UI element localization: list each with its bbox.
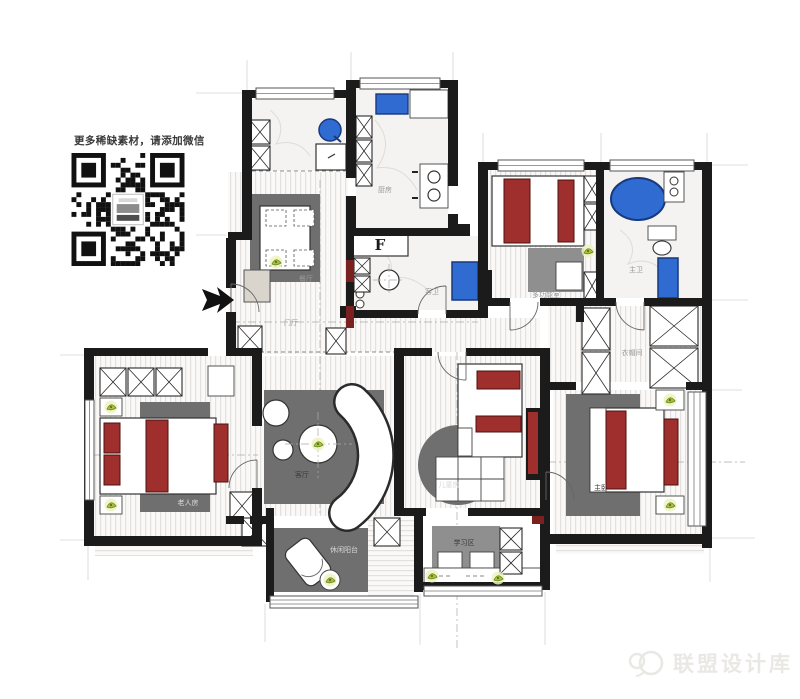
floorplan-drawing: 厨房 客卫 餐厅 门厅 客厅 多功能室 主卫 衣帽间 主卧 儿童房 学习区 休闲… xyxy=(0,0,800,699)
label-living: 客厅 xyxy=(295,470,309,479)
label-master-bedroom: 主卧 xyxy=(594,483,608,492)
watermark: 联盟设计库 xyxy=(626,646,793,680)
wechat-qr-code xyxy=(68,153,188,266)
label-guest-bath: 客卫 xyxy=(425,287,439,296)
floorplan-canvas: 厨房 客卫 餐厅 门厅 客厅 多功能室 主卫 衣帽间 主卧 儿童房 学习区 休闲… xyxy=(0,0,800,699)
label-study: 学习区 xyxy=(454,538,475,547)
label-kids-room: 儿童房 xyxy=(439,480,460,489)
wechat-promo-text: 更多稀缺素材，请添加微信 xyxy=(74,133,274,148)
label-foyer: 门厅 xyxy=(284,318,298,327)
label-multi-function: 多功能室 xyxy=(532,290,560,299)
label-dining: 餐厅 xyxy=(299,274,313,283)
entry-shoe-cabinet xyxy=(244,270,270,302)
label-kitchen: 厨房 xyxy=(378,185,392,194)
watermark-logo-icon xyxy=(626,646,666,680)
dining-table xyxy=(260,206,314,270)
fridge-symbol: F xyxy=(375,236,386,254)
label-balcony: 休闲阳台 xyxy=(330,545,358,554)
watermark-text: 联盟设计库 xyxy=(673,648,793,678)
label-elder-room: 老人房 xyxy=(178,498,199,507)
label-master-bath: 主卫 xyxy=(629,265,643,274)
label-closet: 衣帽间 xyxy=(622,348,643,357)
study-furniture xyxy=(424,526,542,584)
